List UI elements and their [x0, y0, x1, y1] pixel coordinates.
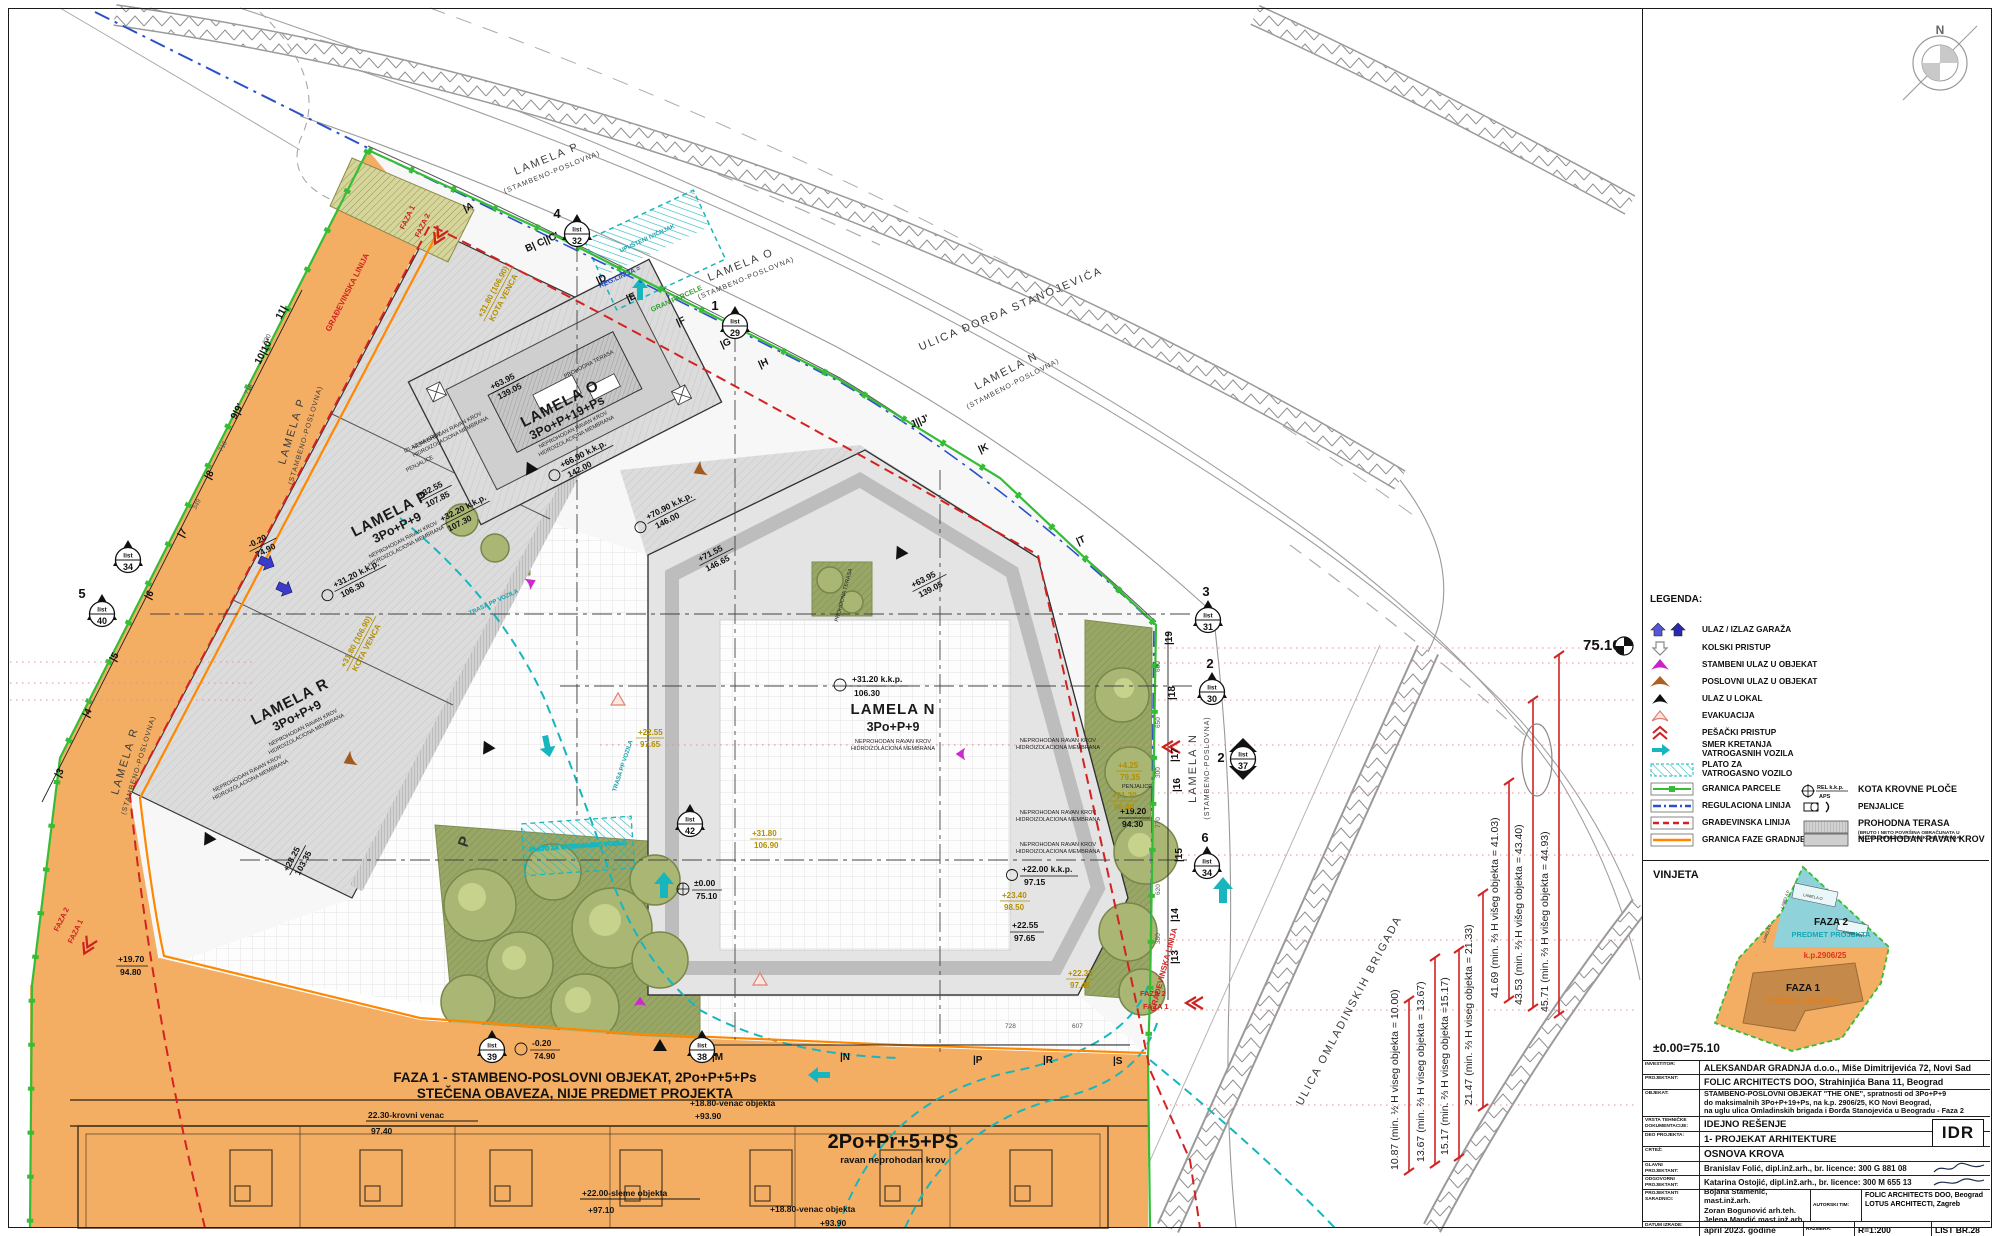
north-letter: N [1936, 23, 1945, 37]
dim-ellipse [1522, 724, 1552, 796]
legend-label: GRANICA PARCELE [1702, 785, 1781, 794]
marker-list-37: list372 [1217, 738, 1257, 780]
legend-label: PEŠAČKI PRISTUP [1702, 729, 1776, 738]
marker-list-40: list405 [78, 586, 117, 627]
svg-text:39: 39 [487, 1052, 497, 1062]
regulation-line-icon [1650, 798, 1694, 814]
title-block: INVESTITOR:ALEKSANDAR GRADNJA d.o.o., Mi… [1643, 1060, 1990, 1236]
svg-text:NEPROHODAN RAVAN KROV: NEPROHODAN RAVAN KROV [1020, 842, 1097, 848]
svg-text:2: 2 [1217, 750, 1224, 765]
svg-text:+22.00-sleme objekta: +22.00-sleme objekta [582, 1188, 668, 1198]
svg-text:list: list [1203, 613, 1213, 620]
tb-label: VRSTA TEHNIČKE DOKUMENTACIJE: [1643, 1117, 1700, 1131]
vinjeta-faza1: FAZA 1 [1786, 983, 1821, 994]
svg-text:NEPROHODAN RAVAN KROV: NEPROHODAN RAVAN KROV [855, 739, 932, 745]
svg-text:38: 38 [697, 1052, 707, 1062]
vinjeta-faza2: FAZA 2 [1814, 917, 1849, 928]
svg-text:106.30: 106.30 [854, 688, 880, 698]
dim-45-71: 45.71 (min. ⅔ H višeg objekta = 44.93) [1539, 831, 1551, 1012]
svg-text:|R: |R [1043, 1055, 1054, 1066]
legend-label: ULAZ U LOKAL [1702, 695, 1763, 704]
tb-row-projektant: PROJEKTANT:FOLIC ARCHITECTS DOO, Strahin… [1643, 1075, 1990, 1090]
vinjeta-section: VINJETA FAZA 2 PREDMET PROJEKTA k.p.2906… [1643, 860, 1989, 1061]
tb-row-datum: DATUM IZRADE:april 2023. godineRAZMERA:R… [1643, 1222, 1990, 1236]
marker-list-31: list313 [1193, 584, 1223, 633]
residential-entry-icon [1650, 657, 1694, 673]
pedestrian-icon [1650, 725, 1694, 741]
faza1-building-floors: 2Po+Pr+5+PS [828, 1131, 959, 1153]
legend-label: PLATO ZA VATROGASNO VOZILO [1702, 761, 1792, 778]
svg-text:34: 34 [1202, 868, 1212, 878]
vinjeta-faza1-sub: STEČENA OBAVEZA [1766, 996, 1840, 1005]
svg-text:list: list [1202, 859, 1212, 866]
dim-21-47: 21.47 (min. ⅔ H viseg objekta = 21.33) [1463, 924, 1475, 1105]
svg-text:620: 620 [1155, 884, 1162, 895]
tb-sheet-number: LIST BR.28 [1931, 1222, 1990, 1236]
svg-text:75.10: 75.10 [696, 891, 718, 901]
legend-item-gradjevinska: GRAĐEVINSKA LINIJA [1650, 815, 1790, 831]
svg-text:1: 1 [711, 298, 718, 313]
svg-text:650: 650 [1155, 717, 1162, 728]
tb-label: OBJEKAT: [1643, 1090, 1700, 1116]
svg-text:97.65: 97.65 [1014, 933, 1036, 943]
tb-row-glavni: GLAVNI PROJEKTANT:Branislav Folić, dipl.… [1643, 1162, 1990, 1176]
svg-text:list: list [697, 1043, 707, 1050]
svg-text:|K: |K [977, 441, 991, 455]
tb-row-objekat: OBJEKAT:STAMBENO-POSLOVNI OBJEKAT "THE O… [1643, 1090, 1990, 1117]
svg-text:6: 6 [1201, 830, 1208, 845]
svg-text:HIDROIZOLACIONA MEMBRANA: HIDROIZOLACIONA MEMBRANA [1016, 817, 1100, 823]
svg-text:|S: |S [1113, 1056, 1123, 1067]
svg-text:LAMELA N: LAMELA N [851, 701, 936, 718]
svg-text:97.45: 97.45 [1070, 981, 1091, 990]
signature-glavni [1930, 1162, 1988, 1175]
svg-text:|N: |N [840, 1052, 850, 1063]
legend-item-lokal: ULAZ U LOKAL [1650, 691, 1763, 707]
tb-row-crtez: CRTEŽ:OSNOVA KROVA [1643, 1147, 1990, 1162]
svg-text:+97.10: +97.10 [588, 1205, 615, 1215]
svg-text:+18.80-venac objekta: +18.80-venac objekta [770, 1204, 856, 1214]
tb-value: Bojana Stamenić, mast.inž.arh.Zoran Bogu… [1700, 1190, 1810, 1221]
dim-15-17: 15.17 (min. ⅔ H viseg objekta =15.17) [1439, 977, 1451, 1155]
svg-text:34: 34 [123, 562, 133, 572]
legend-label: GRAĐEVINSKA LINIJA [1702, 819, 1790, 828]
legend-label: REGULACIONA LINIJA [1702, 802, 1791, 811]
svg-text:31: 31 [1203, 622, 1213, 632]
tb-value: ALEKSANDAR GRADNJA d.o.o., Miše Dimitrij… [1700, 1061, 1990, 1074]
svg-text:5: 5 [78, 586, 85, 601]
faza1-title-2: STEČENA OBAVEZA, NIJE PREDMET PROJEKTA [417, 1086, 734, 1101]
svg-text:+93.90: +93.90 [820, 1218, 847, 1228]
tb-row-odgovorni: ODGOVORNI PROJEKTANT:Katarina Ostojić, d… [1643, 1176, 1990, 1190]
faza1-title-1: FAZA 1 - STAMBENO-POSLOVNI OBJEKAT, 2Po+… [393, 1070, 756, 1085]
building-line-icon [1650, 815, 1694, 831]
legend-label: KOTA KROVNE PLOČE [1858, 785, 1957, 794]
courtyard [720, 620, 1010, 950]
vinjeta-parcel: k.p.2906/25 [1804, 951, 1847, 960]
fire-plato-icon [1650, 762, 1694, 778]
svg-text:37: 37 [1238, 761, 1248, 771]
svg-text:29: 29 [730, 328, 740, 338]
legend-label: PENJALICE [1858, 803, 1904, 812]
svg-text:770: 770 [1155, 817, 1162, 828]
dim-10-87: 10.87 (min. ½ H viseg objekta = 10.00) [1389, 989, 1401, 1170]
svg-text:32: 32 [572, 236, 582, 246]
street-lamela-n-east-sub: (STAMBENO-POSLOVNA) [1204, 716, 1211, 819]
legend-label: POSLOVNI ULAZ U OBJEKAT [1702, 678, 1817, 687]
svg-text:97.40: 97.40 [371, 1126, 393, 1136]
elev-ref-75-10: 75.10 [1583, 637, 1633, 655]
grid-east: |19 |18 |17 |16 |15 |14 |13 [1164, 631, 1185, 964]
svg-text:+31.20 k.k.p.: +31.20 k.k.p. [852, 674, 902, 684]
svg-text:3: 3 [1202, 584, 1209, 599]
svg-text:NEPROHODAN RAVAN KROV: NEPROHODAN RAVAN KROV [1020, 810, 1097, 816]
tb-row-deo: DEO PROJEKTA:1- PROJEKAT ARHITEKTURE [1643, 1132, 1990, 1147]
legend-label: PROHODNA TERASA [1858, 818, 1950, 828]
svg-text:94.30: 94.30 [1122, 819, 1144, 829]
legend-label: GRANICA FAZE GRADNJE [1702, 836, 1805, 845]
tb-value-razmera: R=1:200 [1855, 1222, 1931, 1236]
faza2-tag-east: FAZA 2 [1140, 989, 1166, 998]
tb-label-autorski: AUTORSKI TIM: [1810, 1190, 1862, 1221]
tb-row-vrsta: VRSTA TEHNIČKE DOKUMENTACIJE:IDEJNO REŠE… [1643, 1117, 1990, 1132]
legend-item-evakuacija: EVAKUACIJA [1650, 708, 1755, 724]
legend-item-poslovni: POSLOVNI ULAZ U OBJEKAT [1650, 674, 1817, 690]
site-plan-sheet: { "colors":{"orange":"#f3ae63","cyan":"#… [0, 0, 2000, 1236]
vehicle-access-icon [1650, 640, 1694, 656]
svg-text:+23.40: +23.40 [1002, 891, 1027, 900]
legend-label: SMER KRETANJA VATROGASNIH VOZILA [1702, 741, 1794, 758]
legend-label: ULAZ / IZLAZ GARAŽA [1702, 626, 1791, 635]
svg-text:list: list [730, 319, 740, 326]
legend-item-kolski: KOLSKI PRISTUP [1650, 640, 1771, 656]
evacuation-icon [1650, 708, 1694, 724]
legend-item-kota: REL k.k.p.APSKOTA KROVNE PLOČE [1800, 780, 1957, 800]
faza1-tag-east: FAZA 1 [1143, 1002, 1169, 1011]
tb-label: PROJEKTANTI SARADNICI: [1643, 1190, 1700, 1221]
tb-label: DATUM IZRADE: [1643, 1222, 1700, 1236]
legend-item-regulaciona: REGULACIONA LINIJA [1650, 798, 1791, 814]
tb-label: INVESTITOR: [1643, 1061, 1700, 1074]
svg-text:94.80: 94.80 [120, 967, 142, 977]
svg-text:NEPROHODAN RAVAN KROV: NEPROHODAN RAVAN KROV [1020, 738, 1097, 744]
legend-item-faze: GRANICA FAZE GRADNJE [1650, 832, 1805, 848]
svg-text:+4.25: +4.25 [1118, 761, 1139, 770]
svg-text:79.35: 79.35 [1120, 773, 1141, 782]
penjalice-label: PENJALICE [1122, 784, 1152, 790]
svg-text:2: 2 [1206, 656, 1213, 671]
legend-label: NEPROHODAN RAVAN KROV [1858, 835, 1985, 844]
svg-text:+21.30: +21.30 [1112, 791, 1137, 800]
svg-text:40: 40 [97, 616, 107, 626]
office-entry-icon [1650, 674, 1694, 690]
svg-text:|T: |T [1075, 534, 1088, 548]
tb-row-investitor: INVESTITOR:ALEKSANDAR GRADNJA d.o.o., Mi… [1643, 1061, 1990, 1075]
tb-label-razmera: RAZMERA: [1803, 1222, 1855, 1236]
svg-text:+22.00 k.k.p.: +22.00 k.k.p. [1022, 864, 1072, 874]
marker-list-34-west: list34 [113, 540, 143, 573]
svg-text:+18.80-venac objekta: +18.80-venac objekta [690, 1098, 776, 1108]
vinjeta-datum: ±0.00=75.10 [1653, 1041, 1720, 1055]
marker-list-34: list346 [1192, 830, 1222, 879]
svg-text:600: 600 [1155, 661, 1162, 672]
legend-item-penjalice: PENJALICE [1800, 800, 1904, 814]
svg-text:42: 42 [685, 826, 695, 836]
north-compass: N [1895, 18, 1985, 108]
tb-label: DEO PROJEKTA: [1643, 1132, 1700, 1146]
svg-text:HIDROIZOLACIONA MEMBRANA: HIDROIZOLACIONA MEMBRANA [1016, 849, 1100, 855]
svg-text:98.50: 98.50 [1004, 903, 1025, 912]
svg-text:list: list [487, 1043, 497, 1050]
svg-text:728: 728 [1005, 1023, 1016, 1030]
svg-text:±0.00: ±0.00 [694, 878, 715, 888]
tb-label: ODGOVORNI PROJEKTANT: [1643, 1176, 1700, 1189]
roof-level-icon: REL k.k.p.APS [1800, 780, 1852, 800]
tb-value: FOLIC ARCHITECTS DOO, Strahinjića Bana 1… [1700, 1075, 1990, 1089]
svg-text:300: 300 [1155, 767, 1162, 778]
svg-text:+19.70: +19.70 [118, 954, 145, 964]
plato-vatrogasno: PLATO ZA VATROGASNO VOZILO [521, 816, 634, 876]
svg-text:+31.80: +31.80 [752, 829, 777, 838]
tb-value-autorski: FOLIC ARCHITECTS DOO, BeogradLOTUS ARCHI… [1862, 1190, 1990, 1221]
svg-text:+22.55: +22.55 [638, 728, 663, 737]
dim-41-69: 41.69 (min. ⅔ H višeg objekta = 41.03) [1489, 817, 1501, 998]
svg-text:|P: |P [973, 1055, 983, 1066]
dim-43-53: 43.53 (min. ⅔ H višeg objekta = 43.40) [1513, 824, 1525, 1005]
tb-row-saradnici: PROJEKTANTI SARADNICI:Bojana Stamenić, m… [1643, 1190, 1990, 1222]
svg-text:|15: |15 [1174, 848, 1185, 862]
svg-text:97.65: 97.65 [640, 740, 661, 749]
svg-text:4: 4 [553, 206, 561, 221]
legend-label: KOLSKI PRISTUP [1702, 644, 1771, 653]
ladder-icon [1800, 800, 1852, 814]
svg-text:350: 350 [1155, 933, 1162, 944]
svg-text:+22.35: +22.35 [1068, 969, 1093, 978]
legend-item-parcela: GRANICA PARCELE [1650, 781, 1781, 797]
svg-text:96.40: 96.40 [1114, 803, 1135, 812]
svg-text:+93.90: +93.90 [695, 1111, 722, 1121]
tb-value: 1- PROJEKAT ARHITEKTURE [1700, 1132, 1990, 1146]
legend-item-neprohodan: NEPROHODAN RAVAN KROV [1800, 832, 1985, 848]
svg-text:list: list [123, 553, 133, 560]
svg-text:list: list [1238, 752, 1248, 759]
svg-text:list: list [1207, 685, 1217, 692]
vinjeta-map: FAZA 2 PREDMET PROJEKTA k.p.2906/25 FAZA… [1643, 861, 1989, 1061]
tb-value: OSNOVA KROVA [1700, 1147, 1990, 1161]
svg-text:|19: |19 [1164, 631, 1175, 645]
legend-label: EVAKUACIJA [1702, 712, 1755, 721]
svg-text:HIDROIZOLACIONA MEMBRANA: HIDROIZOLACIONA MEMBRANA [851, 746, 935, 752]
svg-text:list: list [572, 227, 582, 234]
svg-text:607: 607 [1072, 1023, 1083, 1030]
svg-text:|13: |13 [1170, 950, 1181, 964]
tb-value: april 2023. godine [1700, 1222, 1803, 1236]
legend-label: STAMBENI ULAZ U OBJEKAT [1702, 661, 1817, 670]
legend-item-garaza: ULAZ / IZLAZ GARAŽA [1650, 622, 1791, 638]
svg-text:-0.20: -0.20 [532, 1038, 552, 1048]
site-plan-drawing: PLATO ZA VATROGASNO VOZILO 10.87 (min. ½… [0, 0, 1642, 1236]
svg-text:|16: |16 [1172, 778, 1183, 792]
svg-text:3Po+P+9: 3Po+P+9 [867, 720, 920, 734]
legend-item-stambeni: STAMBENI ULAZ U OBJEKAT [1650, 657, 1817, 673]
svg-text:|18: |18 [1167, 686, 1178, 700]
svg-text:REL k.k.p.: REL k.k.p. [1817, 785, 1844, 791]
svg-text:|17: |17 [1170, 748, 1181, 762]
svg-text:list: list [97, 607, 107, 614]
legend-item-pesacki: PEŠAČKI PRISTUP [1650, 725, 1776, 741]
svg-text:97.15: 97.15 [1024, 877, 1046, 887]
svg-text:HIDROIZOLACIONA MEMBRANA: HIDROIZOLACIONA MEMBRANA [1016, 745, 1100, 751]
parcel-line-icon [1650, 781, 1694, 797]
legend-title: LEGENDA: [1650, 594, 1702, 605]
fire-route-icon [1650, 742, 1694, 758]
signature-odgovorni [1930, 1176, 1988, 1189]
svg-text:+22.55: +22.55 [1012, 920, 1039, 930]
tb-label: GLAVNI PROJEKTANT: [1643, 1162, 1700, 1175]
flat-roof-icon [1800, 832, 1852, 848]
phase-line-icon [1650, 832, 1694, 848]
legend-item-smer: SMER KRETANJA VATROGASNIH VOZILA [1650, 742, 1794, 758]
legend-item-plato: PLATO ZA VATROGASNO VOZILO [1650, 762, 1792, 778]
faza1-building-roof: ravan neprohodan krov [840, 1155, 946, 1166]
svg-text:list: list [685, 817, 695, 824]
svg-text:|14: |14 [1170, 908, 1181, 922]
svg-text:106.90: 106.90 [754, 841, 779, 850]
svg-text:22.30-krovni venac: 22.30-krovni venac [368, 1110, 444, 1120]
tb-label: PROJEKTANT: [1643, 1075, 1700, 1089]
dim-13-67: 13.67 (min. ⅔ H viseg objekta = 13.67) [1415, 981, 1427, 1162]
svg-text:74.90: 74.90 [534, 1051, 556, 1061]
garage-entry-icon [1650, 622, 1694, 638]
tb-label: CRTEŽ: [1643, 1147, 1700, 1161]
svg-text:30: 30 [1207, 694, 1217, 704]
street-lamela-n-east: LAMELA N [1187, 733, 1199, 803]
shop-entry-icon [1650, 691, 1694, 707]
tb-value: STAMBENO-POSLOVNI OBJEKAT "THE ONE", spr… [1700, 1090, 1990, 1116]
